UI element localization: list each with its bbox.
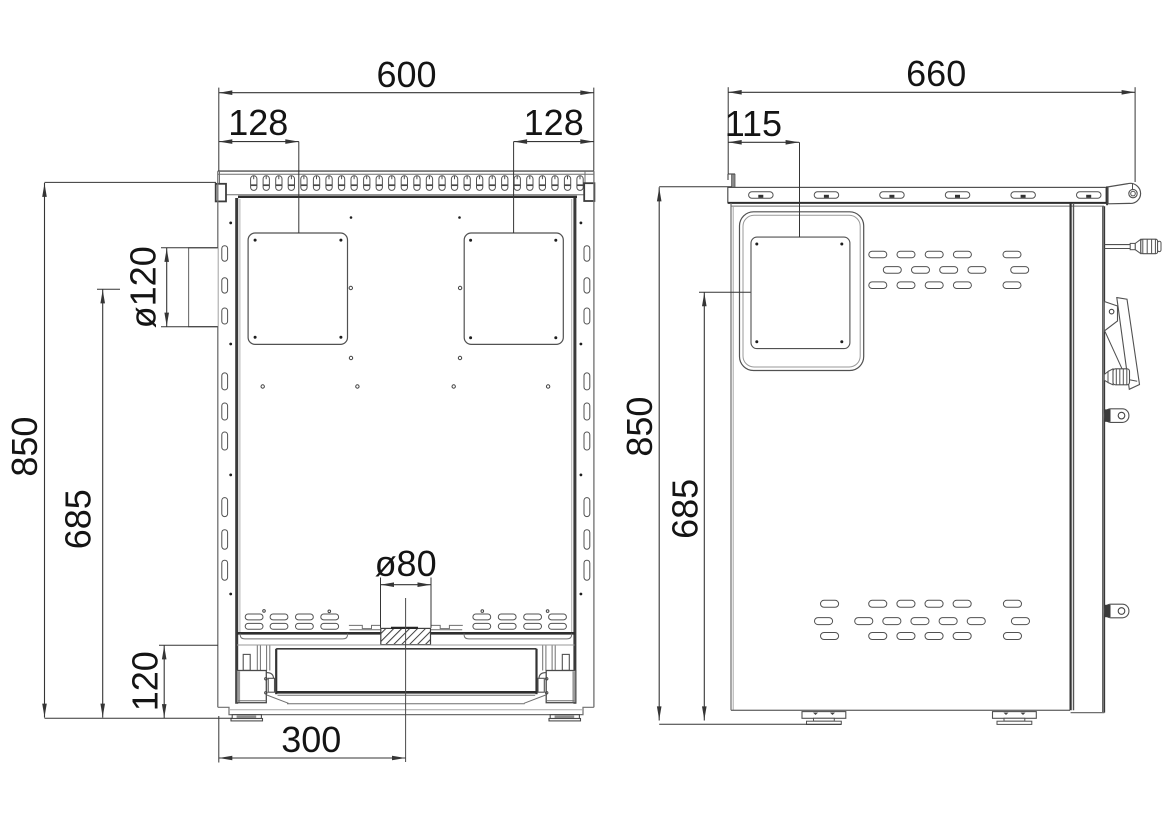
svg-text:600: 600 [376,54,436,95]
svg-text:115: 115 [725,103,782,144]
svg-text:300: 300 [281,719,341,760]
svg-text:ø120: ø120 [122,246,163,328]
svg-text:ø80: ø80 [375,543,437,584]
svg-text:850: 850 [619,397,660,457]
svg-text:120: 120 [124,651,165,711]
svg-text:685: 685 [664,479,705,539]
svg-text:685: 685 [58,489,99,549]
svg-text:850: 850 [4,417,45,477]
svg-text:660: 660 [906,53,966,94]
svg-text:128: 128 [524,102,584,143]
svg-text:128: 128 [228,102,288,143]
